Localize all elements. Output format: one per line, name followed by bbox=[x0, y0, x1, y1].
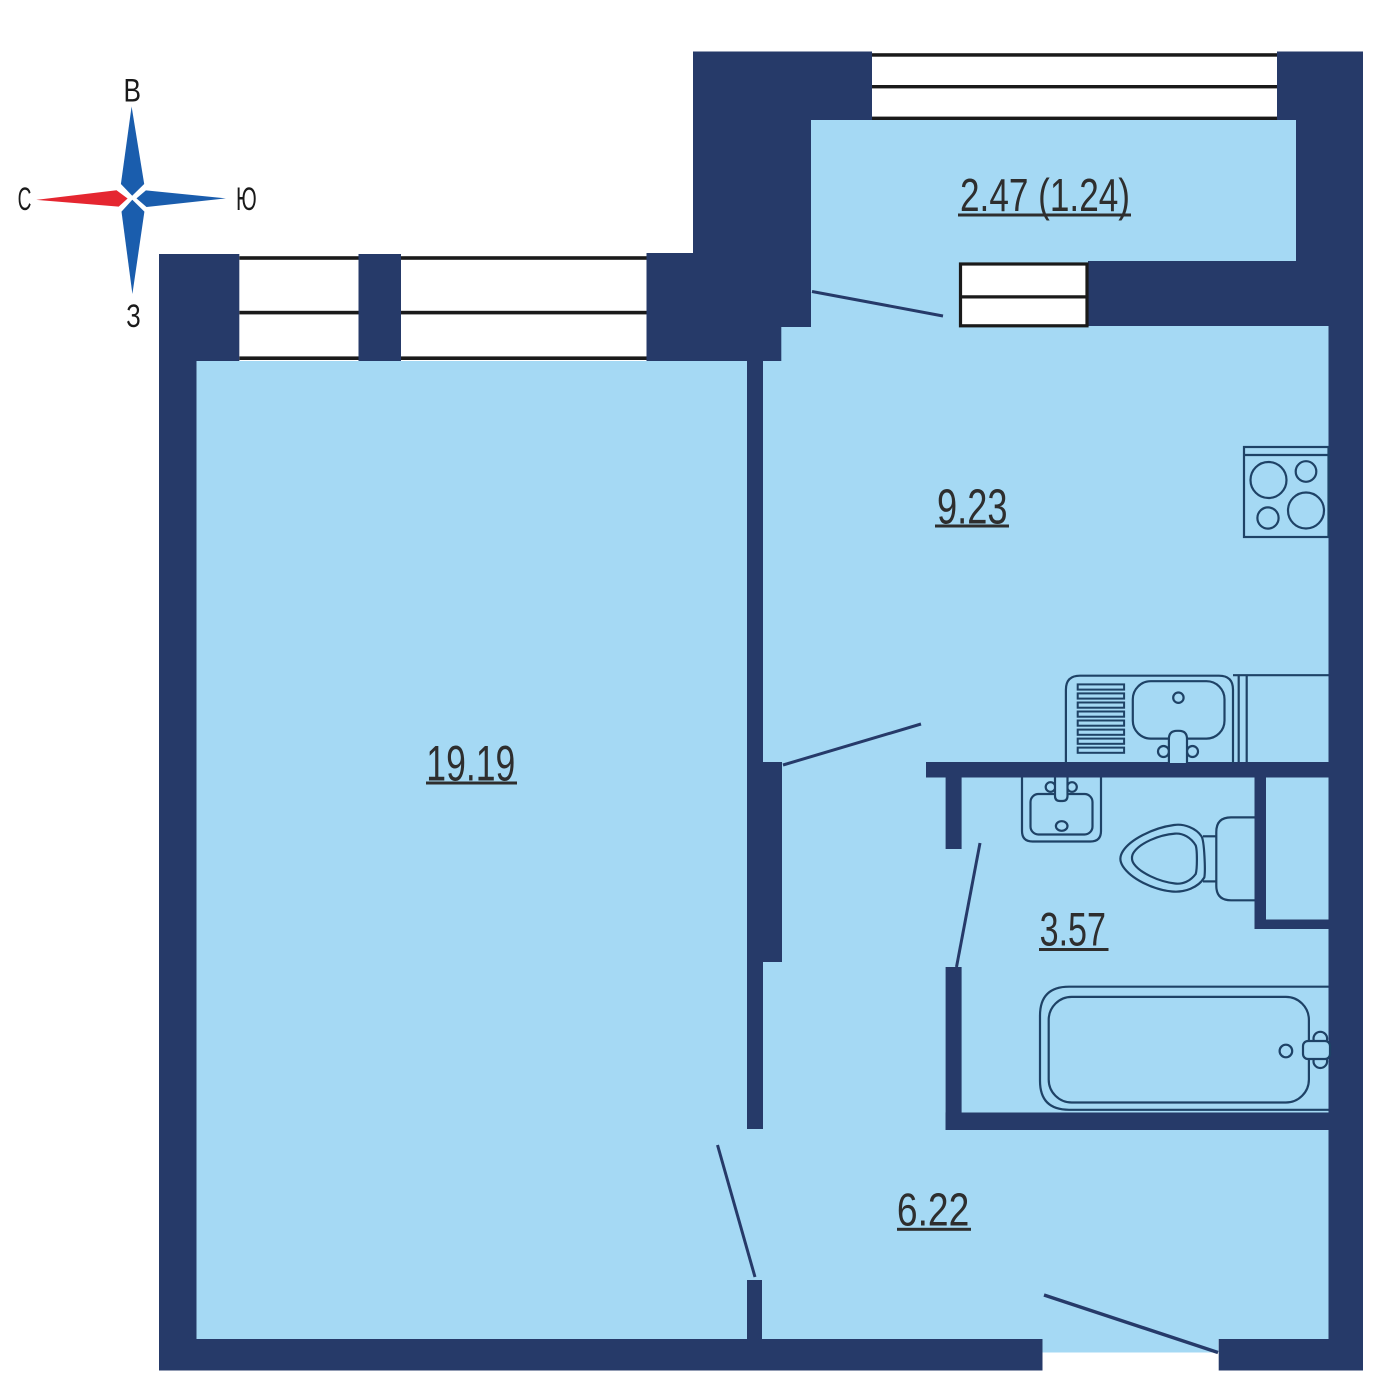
svg-text:З: З bbox=[126, 298, 141, 334]
svg-text:6.22: 6.22 bbox=[897, 1184, 969, 1236]
svg-text:В: В bbox=[124, 72, 142, 108]
svg-text:3.57: 3.57 bbox=[1040, 903, 1106, 956]
svg-text:2.47 (1.24): 2.47 (1.24) bbox=[960, 169, 1130, 221]
svg-text:С: С bbox=[18, 181, 32, 217]
svg-text:Ю: Ю bbox=[236, 181, 257, 217]
